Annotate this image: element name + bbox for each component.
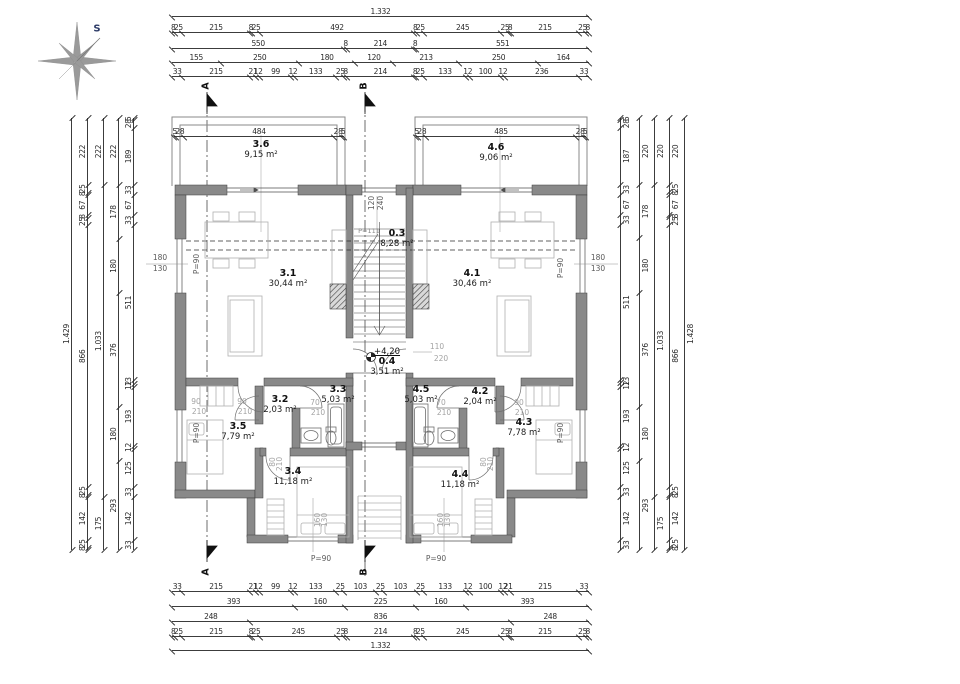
dimension-value: 160 xyxy=(295,596,345,606)
room-label-3.1: 3.130,44 m² xyxy=(269,269,308,289)
dimension-value: 550 xyxy=(172,38,344,48)
annotation: 130 xyxy=(591,265,605,273)
annotation: P=90 xyxy=(193,423,201,443)
room-id: 4.4 xyxy=(441,470,480,480)
dimension-value: 215 xyxy=(511,22,578,32)
dimension-value: 99 xyxy=(260,581,291,591)
room-id: 4.1 xyxy=(453,269,492,279)
room-label-4.3: 4.37,78 m² xyxy=(507,418,540,438)
room-area: 5,03 m² xyxy=(404,395,437,405)
dimension-chain: 1.332 xyxy=(172,5,589,17)
annotation: 130 xyxy=(321,513,329,527)
north-label: S xyxy=(93,24,100,35)
dimension-value: 220 xyxy=(671,118,681,185)
dimension-value: 484 xyxy=(184,126,334,136)
dimension-chain: 528485285 xyxy=(416,125,586,137)
annotation: P=111 xyxy=(358,227,380,235)
room-label-4.5: 4.55,03 m² xyxy=(404,385,437,405)
room-id: 4.3 xyxy=(507,418,540,428)
dimension-value: 213 xyxy=(393,52,460,62)
dimension-value: 100 xyxy=(470,581,501,591)
dimension-value: 133 xyxy=(295,66,337,76)
annotation: P=90 xyxy=(426,555,446,563)
dimension-value: 175 xyxy=(93,497,103,550)
dimension-value: 393 xyxy=(466,596,589,606)
annotation: 210 xyxy=(276,457,284,471)
annotation: 90 xyxy=(514,399,524,407)
dimension-chain: 3321521129912133258214825133121001223633 xyxy=(172,65,589,77)
dimension-value: 220 xyxy=(641,118,651,185)
dimension-chain: 55082148551 xyxy=(172,37,589,49)
dimension-value: 180 xyxy=(299,52,355,62)
dimension-value: 215 xyxy=(182,66,249,76)
dimension-chain: 1751.033220 xyxy=(654,118,666,550)
dimension-chain: 82514282586625867825222 xyxy=(76,118,88,550)
dimension-value: 245 xyxy=(424,22,501,32)
dimension-value: 33 xyxy=(172,66,182,76)
dimension-value: 866 xyxy=(77,225,87,487)
dimension-value: 142 xyxy=(622,497,632,540)
dimension-value: 220 xyxy=(656,118,666,185)
annotation: 180 xyxy=(591,254,605,262)
dimension-value: 511 xyxy=(123,225,133,379)
dimension-value: 142 xyxy=(671,497,681,540)
annotation: 220 xyxy=(434,355,448,363)
annotation: 90 xyxy=(191,398,201,406)
annotation: 210 xyxy=(311,409,325,417)
dimension-value: 1.332 xyxy=(172,640,589,650)
dimension-value: 376 xyxy=(641,293,651,407)
dimension-value: 5 xyxy=(622,118,632,120)
dimension-value: 492 xyxy=(260,22,414,32)
annotation: 70 xyxy=(436,399,446,407)
dimension-value: 214 xyxy=(347,626,414,636)
room-label-3.5: 3.57,79 m² xyxy=(221,422,254,442)
annotation: 210 xyxy=(192,408,206,416)
room-label-4.2: 4.22,04 m² xyxy=(463,387,496,407)
room-area: 5,03 m² xyxy=(321,395,354,405)
room-label-0.4: +4,200.43,51 m² xyxy=(370,347,403,377)
dimension-value: 178 xyxy=(641,185,651,239)
dimension-chain: 1751.033222 xyxy=(92,118,104,550)
room-area: 9,15 m² xyxy=(244,150,277,160)
room-area: 7,79 m² xyxy=(221,432,254,442)
room-label-3.2: 3.22,03 m² xyxy=(263,395,296,415)
dimension-value: 1.332 xyxy=(172,6,589,16)
dimension-value: 248 xyxy=(511,611,589,621)
room-area: 8,28 m² xyxy=(380,239,413,249)
annotation: 70 xyxy=(310,399,320,407)
dimension-value: 100 xyxy=(470,66,501,76)
dimension-value: 120 xyxy=(355,52,393,62)
annotation: 210 xyxy=(238,408,252,416)
annotation: 120 xyxy=(368,196,376,210)
dimension-value: 250 xyxy=(221,52,299,62)
dimension-value: 133 xyxy=(424,66,466,76)
room-id: 3.2 xyxy=(263,395,296,405)
dimension-value: 187 xyxy=(622,128,632,185)
dimension-value: 245 xyxy=(260,626,337,636)
dimension-value: 393 xyxy=(172,596,295,606)
room-area: 2,03 m² xyxy=(263,405,296,415)
dimension-value: 215 xyxy=(182,581,249,591)
room-label-4.4: 4.411,18 m² xyxy=(441,470,480,490)
slider-arrow-icons xyxy=(240,188,519,192)
dimension-value: 222 xyxy=(93,118,103,185)
room-area: 7,78 m² xyxy=(507,428,540,438)
room-id: 0.4 xyxy=(370,357,403,367)
dimension-chain: 3314233125121931213511336733187285 xyxy=(620,118,632,550)
room-id: 4.2 xyxy=(463,387,496,397)
annotation: 210 xyxy=(437,409,451,417)
dimension-value: 1.033 xyxy=(656,185,666,498)
dimension-chain: 3321521129912133251032510325133121001221… xyxy=(172,580,589,592)
section-lines xyxy=(207,100,365,576)
dimension-chain: 1.332 xyxy=(172,639,589,651)
compass-rose-icon xyxy=(38,22,116,100)
room-id: 3.5 xyxy=(221,422,254,432)
annotation: 210 xyxy=(515,409,529,417)
room-id: 3.3 xyxy=(321,385,354,395)
dimension-value: 25 xyxy=(671,217,681,225)
dimension-value: 33 xyxy=(172,581,182,591)
room-area: 2,04 m² xyxy=(463,397,496,407)
dimension-value: 866 xyxy=(671,225,681,487)
room-area: 30,46 m² xyxy=(453,279,492,289)
annotation: P=90 xyxy=(311,555,331,563)
section-marker-a-top: A xyxy=(201,82,212,89)
annotation: 240 xyxy=(377,196,385,210)
entry-steps xyxy=(358,496,401,540)
room-area: 30,44 m² xyxy=(269,279,308,289)
dimension-value: 142 xyxy=(77,497,87,540)
annotation: 90 xyxy=(237,398,247,406)
dimension-value: 293 xyxy=(108,461,118,550)
dimension-value: 1.429 xyxy=(61,118,71,550)
dimension-value: 189 xyxy=(123,128,133,185)
annotation: P=90 xyxy=(193,254,201,274)
dimension-value: 222 xyxy=(77,118,87,185)
dimension-value: 215 xyxy=(182,22,249,32)
dimension-value: 33 xyxy=(622,487,632,497)
annotation: P=90 xyxy=(557,423,565,443)
dimension-value: 1.033 xyxy=(93,185,103,497)
room-label-3.6: 3.69,15 m² xyxy=(244,140,277,160)
dimension-value: 836 xyxy=(250,611,512,621)
dimension-value: 193 xyxy=(123,387,133,445)
floor-plan: S A B A B 1.3328252158254928252452582152… xyxy=(0,0,960,684)
dimension-value: 125 xyxy=(123,449,133,487)
room-area: 11,18 m² xyxy=(441,480,480,490)
room-area: 9,06 m² xyxy=(479,153,512,163)
section-marker-b-bottom: B xyxy=(359,568,370,575)
room-label-4.1: 4.130,46 m² xyxy=(453,269,492,289)
section-marker-b-top: B xyxy=(359,82,370,89)
dimension-value: 33 xyxy=(622,185,632,195)
section-marker-a-bottom: A xyxy=(201,568,212,575)
dimension-value: 193 xyxy=(622,387,632,445)
dimension-value: 214 xyxy=(347,38,414,48)
dimension-value: 215 xyxy=(511,626,578,636)
dimension-value: 511 xyxy=(622,225,632,380)
room-area: 3,51 m² xyxy=(370,367,403,377)
annotation: 210 xyxy=(487,457,495,471)
dimension-value: 133 xyxy=(295,581,337,591)
dimension-value: 215 xyxy=(182,626,249,636)
dimension-value: 133 xyxy=(424,581,466,591)
terrace-guide-lines xyxy=(261,135,500,232)
dimension-chain: 82514282586625867825220 xyxy=(669,118,681,550)
dimension-value: 245 xyxy=(424,626,501,636)
dimension-value: 160 xyxy=(416,596,466,606)
dimension-value: 222 xyxy=(108,118,118,185)
dimension-value: 175 xyxy=(656,497,666,550)
dimension-chain: 293180376180178220 xyxy=(639,118,651,550)
dimension-chain: 393160225160393 xyxy=(172,595,589,607)
dimension-value: 250 xyxy=(459,52,537,62)
dimension-chain: 3314233125121931213511336733189285 xyxy=(122,118,134,550)
dimension-value: 8 xyxy=(671,215,681,217)
room-area: 11,18 m² xyxy=(274,477,313,487)
annotation: 110 xyxy=(430,343,444,351)
room-id: 4.5 xyxy=(404,385,437,395)
dimension-value: 33 xyxy=(622,540,632,550)
dimension-value: 180 xyxy=(108,239,118,293)
room-id: 3.1 xyxy=(269,269,308,279)
dimension-value: 180 xyxy=(108,407,118,461)
dimension-chain: 155250180120213250164 xyxy=(172,51,589,63)
dimension-value: 33 xyxy=(622,215,632,225)
dimension-value: 142 xyxy=(123,497,133,540)
annotation: 130 xyxy=(153,265,167,273)
dimension-chain: 248836248 xyxy=(172,610,589,622)
dimension-chain: 528484285 xyxy=(174,125,344,137)
dimension-value: 376 xyxy=(108,293,118,407)
room-label-4.6: 4.69,06 m² xyxy=(479,143,512,163)
dimension-chain: 293180376180178222 xyxy=(107,118,119,550)
dimension-value: 236 xyxy=(505,66,579,76)
dimension-value: 103 xyxy=(384,581,416,591)
room-label-0.3: 0.38,28 m² xyxy=(380,229,413,249)
dimension-value: 1.428 xyxy=(686,118,696,550)
annotation: P=90 xyxy=(557,258,565,278)
dimension-value: 180 xyxy=(641,239,651,293)
dimension-chain: 825215825245258214825245258215258 xyxy=(172,625,589,637)
dimension-value: 25 xyxy=(671,487,681,495)
dimension-value: 485 xyxy=(426,126,576,136)
annotation: 130 xyxy=(444,513,452,527)
dimension-value: 125 xyxy=(622,449,632,487)
dimension-chain: 1.429 xyxy=(60,118,72,550)
room-label-3.3: 3.35,03 m² xyxy=(321,385,354,405)
room-id: 4.6 xyxy=(479,143,512,153)
dimension-chain: 1.428 xyxy=(684,118,696,550)
dimension-value: 248 xyxy=(172,611,250,621)
dimension-value: 25 xyxy=(671,540,681,548)
dimension-value: 155 xyxy=(172,52,221,62)
dimension-value: 551 xyxy=(416,38,589,48)
dimension-value: 293 xyxy=(641,461,651,550)
dimension-chain: 825215825492825245258215258 xyxy=(172,21,589,33)
dimension-value: 214 xyxy=(347,66,414,76)
dimension-value: 225 xyxy=(345,596,415,606)
dimension-value: 215 xyxy=(511,581,578,591)
annotation: 180 xyxy=(153,254,167,262)
dimension-value: 180 xyxy=(641,407,651,461)
dimension-value: 178 xyxy=(108,185,118,239)
room-id: 3.6 xyxy=(244,140,277,150)
dimension-value: 164 xyxy=(538,52,589,62)
room-id: 0.3 xyxy=(380,229,413,239)
